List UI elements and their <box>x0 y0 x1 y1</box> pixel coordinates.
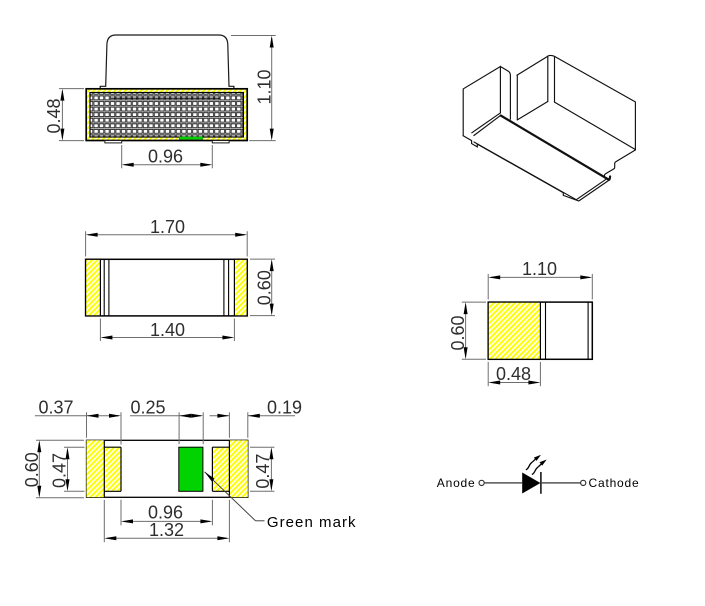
svg-text:1.10: 1.10 <box>522 259 557 279</box>
svg-text:0.48: 0.48 <box>44 98 64 133</box>
svg-text:0.96: 0.96 <box>148 146 183 166</box>
svg-text:0.47: 0.47 <box>253 454 273 489</box>
svg-text:0.25: 0.25 <box>131 397 166 417</box>
svg-text:1.40: 1.40 <box>150 320 185 340</box>
svg-text:0.60: 0.60 <box>254 270 274 305</box>
svg-text:1.10: 1.10 <box>255 69 275 104</box>
svg-text:1.32: 1.32 <box>149 520 184 540</box>
svg-text:Cathode: Cathode <box>589 476 640 490</box>
svg-text:1.70: 1.70 <box>150 217 185 237</box>
svg-text:0.60: 0.60 <box>22 452 42 487</box>
svg-text:Green mark: Green mark <box>267 514 357 531</box>
svg-text:0.60: 0.60 <box>448 315 468 350</box>
svg-text:0.48: 0.48 <box>496 364 531 384</box>
svg-text:0.47: 0.47 <box>49 453 69 488</box>
svg-text:0.37: 0.37 <box>39 397 74 417</box>
svg-text:Anode: Anode <box>437 476 476 490</box>
svg-text:0.19: 0.19 <box>267 397 302 417</box>
